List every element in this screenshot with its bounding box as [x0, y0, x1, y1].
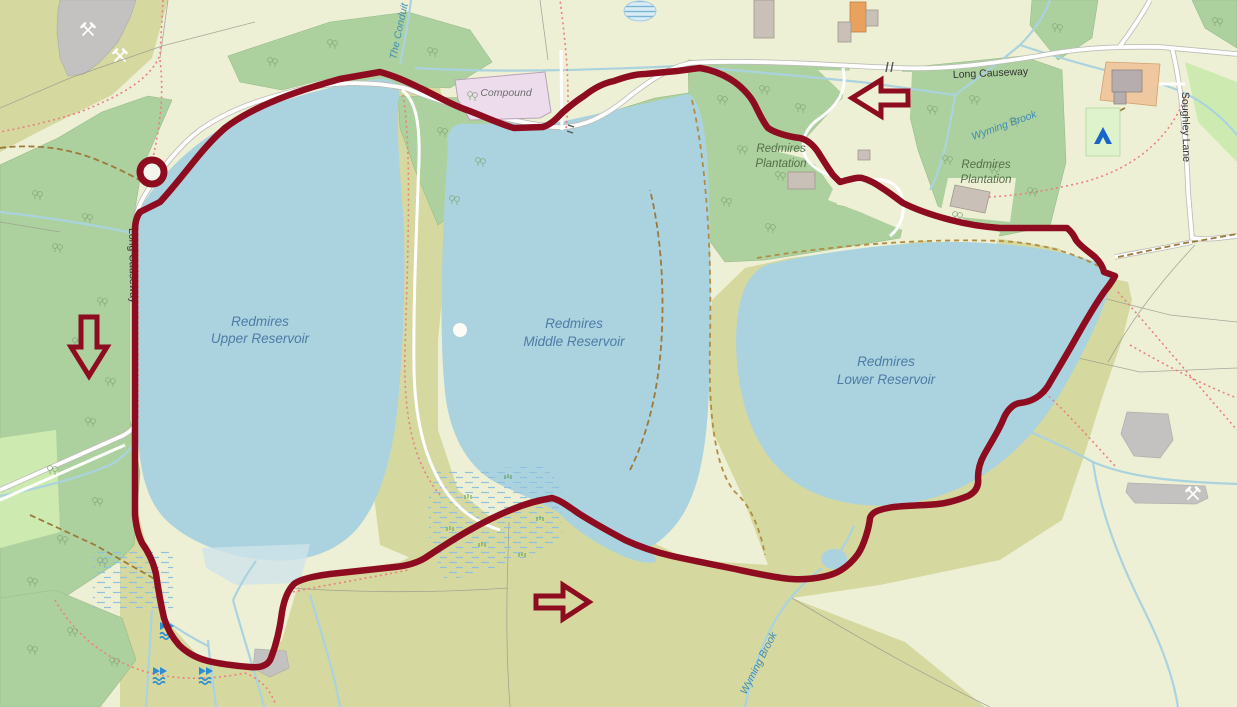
label-plantation-west-1: Redmires: [756, 143, 805, 155]
label-lower-reservoir-2: Lower Reservoir: [837, 372, 936, 387]
label-middle-reservoir-2: Middle Reservoir: [523, 334, 625, 349]
label-middle-reservoir-1: Redmires: [545, 316, 603, 331]
map-canvas: Redmires Upper Reservoir Redmires Middle…: [0, 0, 1237, 707]
label-plantation-east-1: Redmires: [961, 159, 1010, 171]
buoy-icon: [453, 323, 467, 337]
label-plantation-east-2: Plantation: [960, 174, 1011, 186]
label-lower-reservoir-1: Redmires: [857, 354, 915, 369]
route-start-marker: [140, 160, 164, 184]
label-upper-reservoir-2: Upper Reservoir: [211, 331, 310, 346]
label-soughley-lane: Soughley Lane: [1179, 92, 1192, 162]
label-plantation-west-2: Plantation: [755, 158, 806, 170]
walk-route-map: Redmires Upper Reservoir Redmires Middle…: [0, 0, 1237, 707]
campsite: [1086, 108, 1120, 156]
label-upper-reservoir-1: Redmires: [231, 314, 289, 329]
label-compound: Compound: [480, 87, 533, 99]
covered-reservoir: [624, 1, 656, 21]
